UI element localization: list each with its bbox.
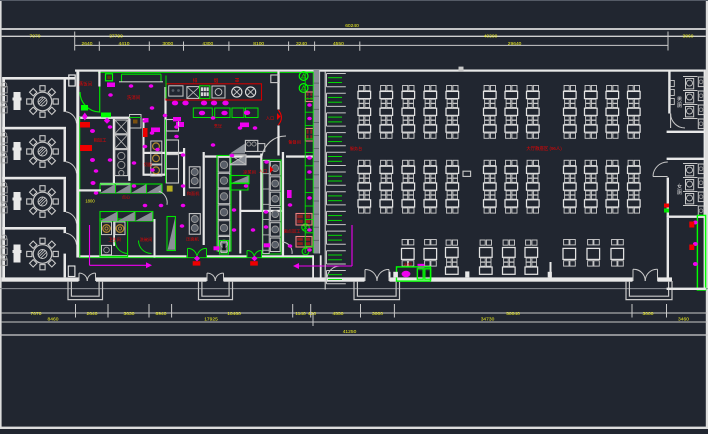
svg-text:服务台: 服务台	[350, 145, 363, 152]
svg-text:10460: 10460	[227, 311, 241, 317]
svg-text:3240: 3240	[296, 41, 307, 47]
svg-text:7070: 7070	[30, 34, 41, 40]
svg-text:41250: 41250	[343, 329, 357, 335]
svg-text:粗加工: 粗加工	[94, 137, 107, 144]
svg-text:17925: 17925	[204, 317, 218, 323]
svg-text:大厅散座区 (96人): 大厅散座区 (96人)	[526, 145, 562, 152]
svg-text:入口: 入口	[266, 116, 274, 121]
svg-text:女: 女	[677, 183, 682, 190]
svg-text:8100: 8100	[253, 41, 264, 47]
svg-text:420: 420	[308, 311, 316, 317]
svg-text:1140: 1140	[295, 311, 306, 317]
svg-text:点心: 点心	[122, 194, 131, 201]
svg-text:洗碗间: 洗碗间	[140, 236, 153, 243]
svg-text:烹饪: 烹饪	[214, 123, 222, 130]
svg-text:入口: 入口	[259, 169, 267, 174]
svg-text:蒸饭间: 蒸饭间	[79, 81, 92, 88]
svg-text:切配: 切配	[144, 161, 153, 168]
svg-text:3860: 3860	[683, 34, 694, 40]
svg-text:8940: 8940	[156, 311, 167, 317]
svg-text:2640: 2640	[87, 311, 98, 317]
svg-text:罩: 罩	[235, 78, 240, 83]
svg-text:2640: 2640	[82, 41, 93, 47]
svg-text:29640: 29640	[508, 41, 522, 47]
svg-text:3000: 3000	[162, 41, 173, 47]
svg-text:厕: 厕	[677, 190, 682, 196]
svg-text:面点加工: 面点加工	[284, 228, 301, 235]
svg-text:40300: 40300	[484, 34, 498, 40]
svg-text:3630: 3630	[124, 311, 135, 317]
svg-text:8460: 8460	[48, 317, 59, 323]
svg-text:3000: 3000	[372, 311, 383, 317]
svg-text:7070: 7070	[31, 311, 42, 317]
svg-text:34730: 34730	[481, 317, 495, 323]
svg-text:3000: 3000	[643, 311, 654, 317]
svg-text:厕: 厕	[677, 103, 682, 109]
svg-text:3460: 3460	[678, 317, 689, 323]
svg-text:卫生间: 卫生间	[108, 236, 121, 243]
svg-text:压面机: 压面机	[186, 236, 199, 243]
svg-text:4550: 4550	[333, 311, 344, 317]
svg-text:4410: 4410	[119, 41, 130, 47]
svg-text:4300: 4300	[202, 41, 213, 47]
svg-text:和面机: 和面机	[187, 190, 200, 197]
svg-text:水吧: 水吧	[403, 261, 412, 267]
svg-text:37790: 37790	[109, 34, 123, 40]
svg-text:4550: 4550	[333, 41, 344, 47]
svg-text:凉菜间: 凉菜间	[243, 169, 256, 176]
svg-text:烟: 烟	[214, 77, 219, 84]
svg-text:60240: 60240	[345, 23, 359, 29]
svg-text:50040: 50040	[506, 311, 520, 317]
svg-text:1800: 1800	[85, 199, 95, 204]
svg-text:洗消间: 洗消间	[127, 94, 140, 101]
svg-text:排: 排	[193, 77, 198, 84]
svg-text:备餐间: 备餐间	[288, 139, 301, 146]
